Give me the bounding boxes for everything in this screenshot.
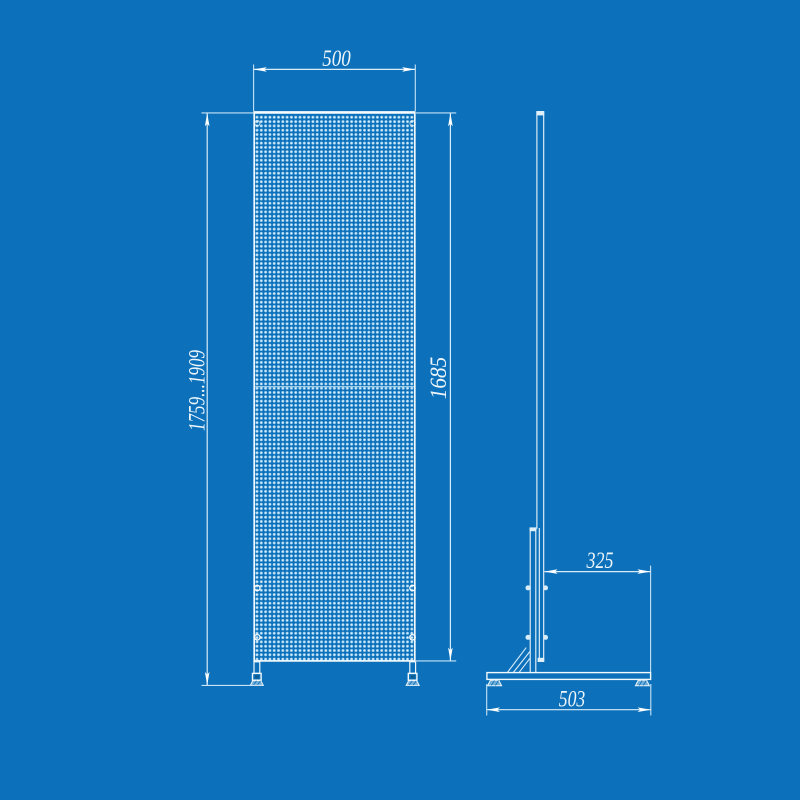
svg-text:1759...1909: 1759...1909 [184, 350, 210, 431]
svg-text:1685: 1685 [426, 357, 452, 400]
svg-text:500: 500 [322, 46, 351, 72]
svg-text:503: 503 [559, 686, 586, 712]
svg-text:325: 325 [586, 548, 614, 574]
